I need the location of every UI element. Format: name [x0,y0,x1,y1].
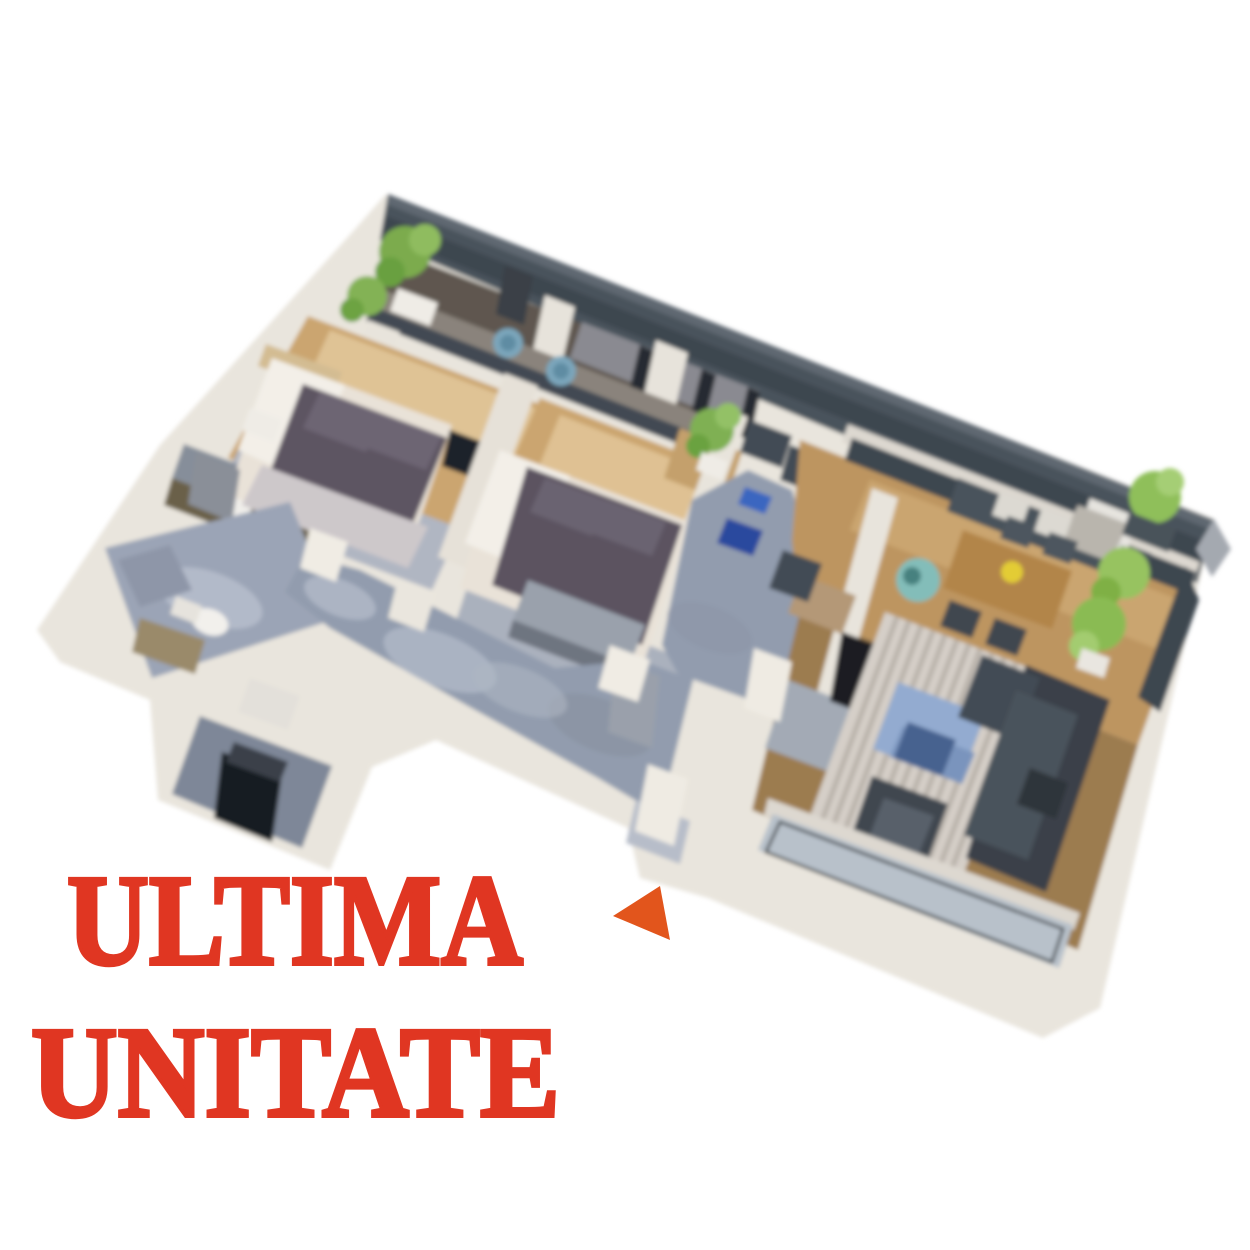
svg-text:ULTIMA: ULTIMA [67,849,523,993]
svg-text:UNITATE: UNITATE [31,1001,560,1145]
